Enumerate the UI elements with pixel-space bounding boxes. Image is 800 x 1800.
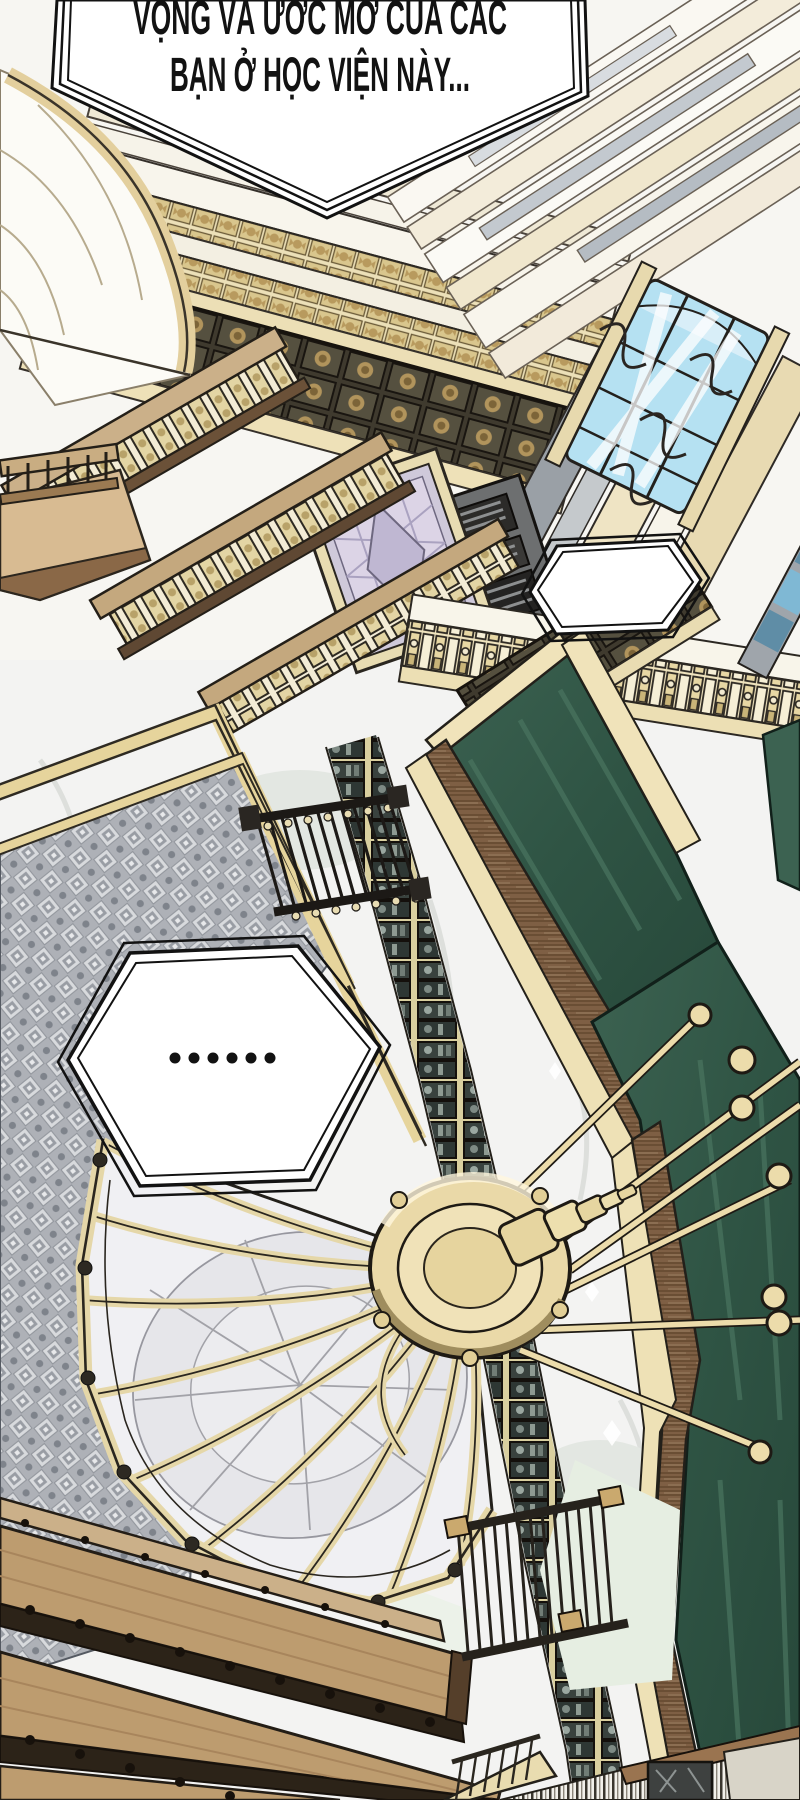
- svg-text:BẠN Ở HỌC VIỆN NÀY...: BẠN Ở HỌC VIỆN NÀY...: [170, 47, 470, 102]
- svg-text:VỌNG VÀ ƯỚC MƠ CỦA CÁC: VỌNG VÀ ƯỚC MƠ CỦA CÁC: [133, 0, 507, 45]
